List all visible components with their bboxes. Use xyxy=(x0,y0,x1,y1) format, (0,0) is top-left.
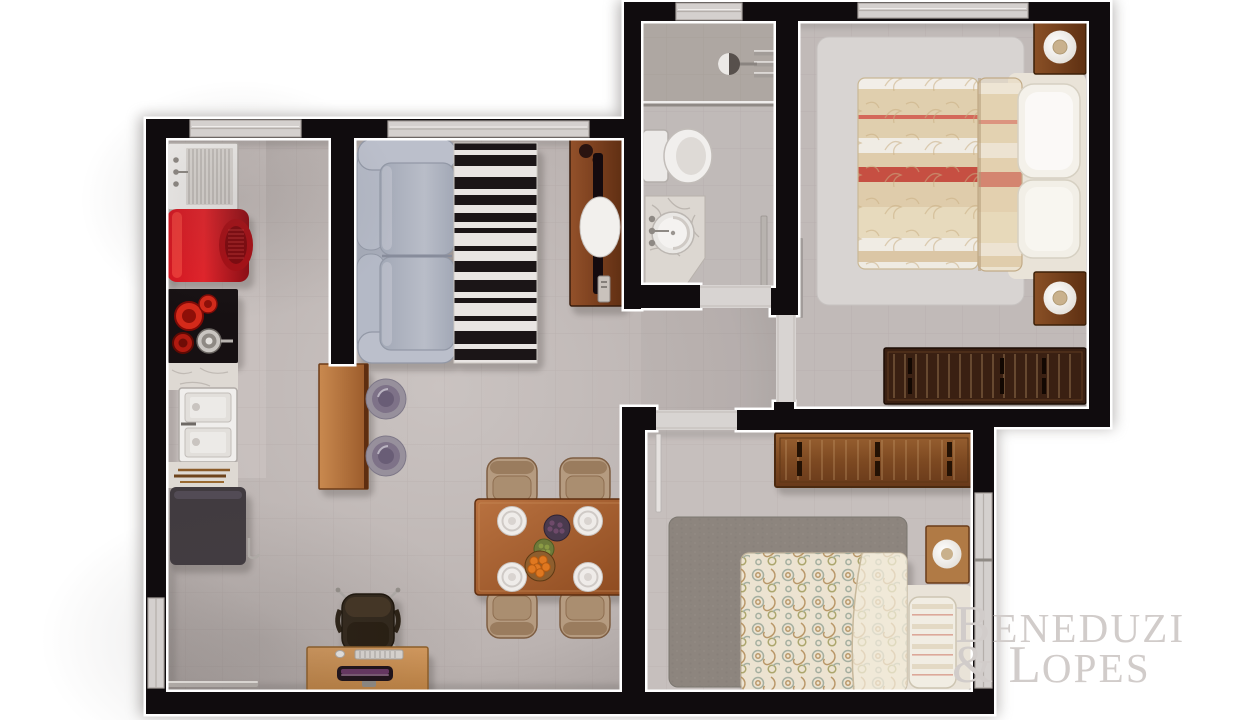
svg-text:& LOPES: & LOPES xyxy=(952,636,1151,694)
